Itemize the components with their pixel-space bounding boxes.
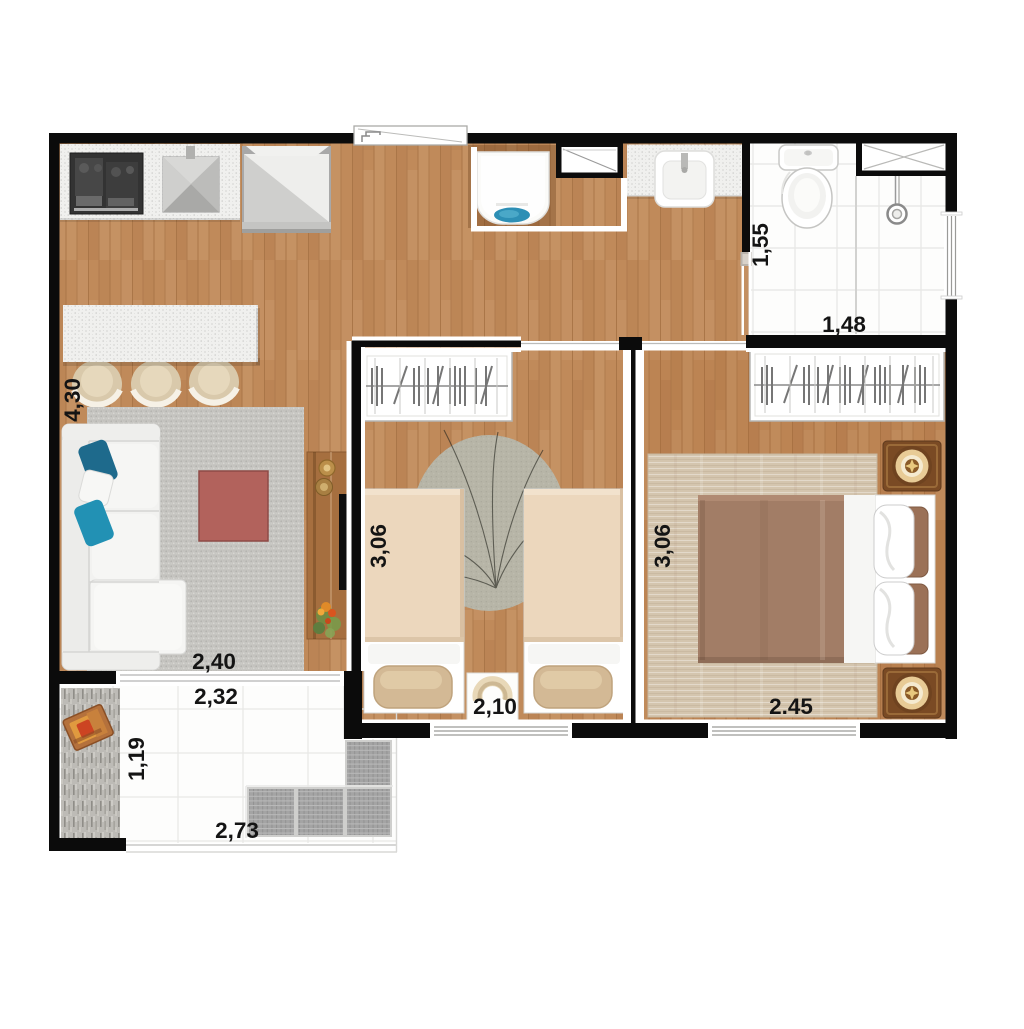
svg-text:2,73: 2,73 [215, 818, 259, 843]
svg-text:3,06: 3,06 [650, 524, 675, 568]
svg-text:1,55: 1,55 [748, 223, 773, 267]
svg-text:4,30: 4,30 [60, 378, 85, 422]
svg-text:3,06: 3,06 [366, 524, 391, 568]
svg-text:1,48: 1,48 [822, 312, 866, 337]
svg-text:2.45: 2.45 [769, 694, 813, 719]
svg-text:1,19: 1,19 [124, 737, 149, 781]
svg-text:2,10: 2,10 [473, 694, 517, 719]
svg-text:2,40: 2,40 [192, 649, 236, 674]
svg-text:2,32: 2,32 [194, 684, 238, 709]
